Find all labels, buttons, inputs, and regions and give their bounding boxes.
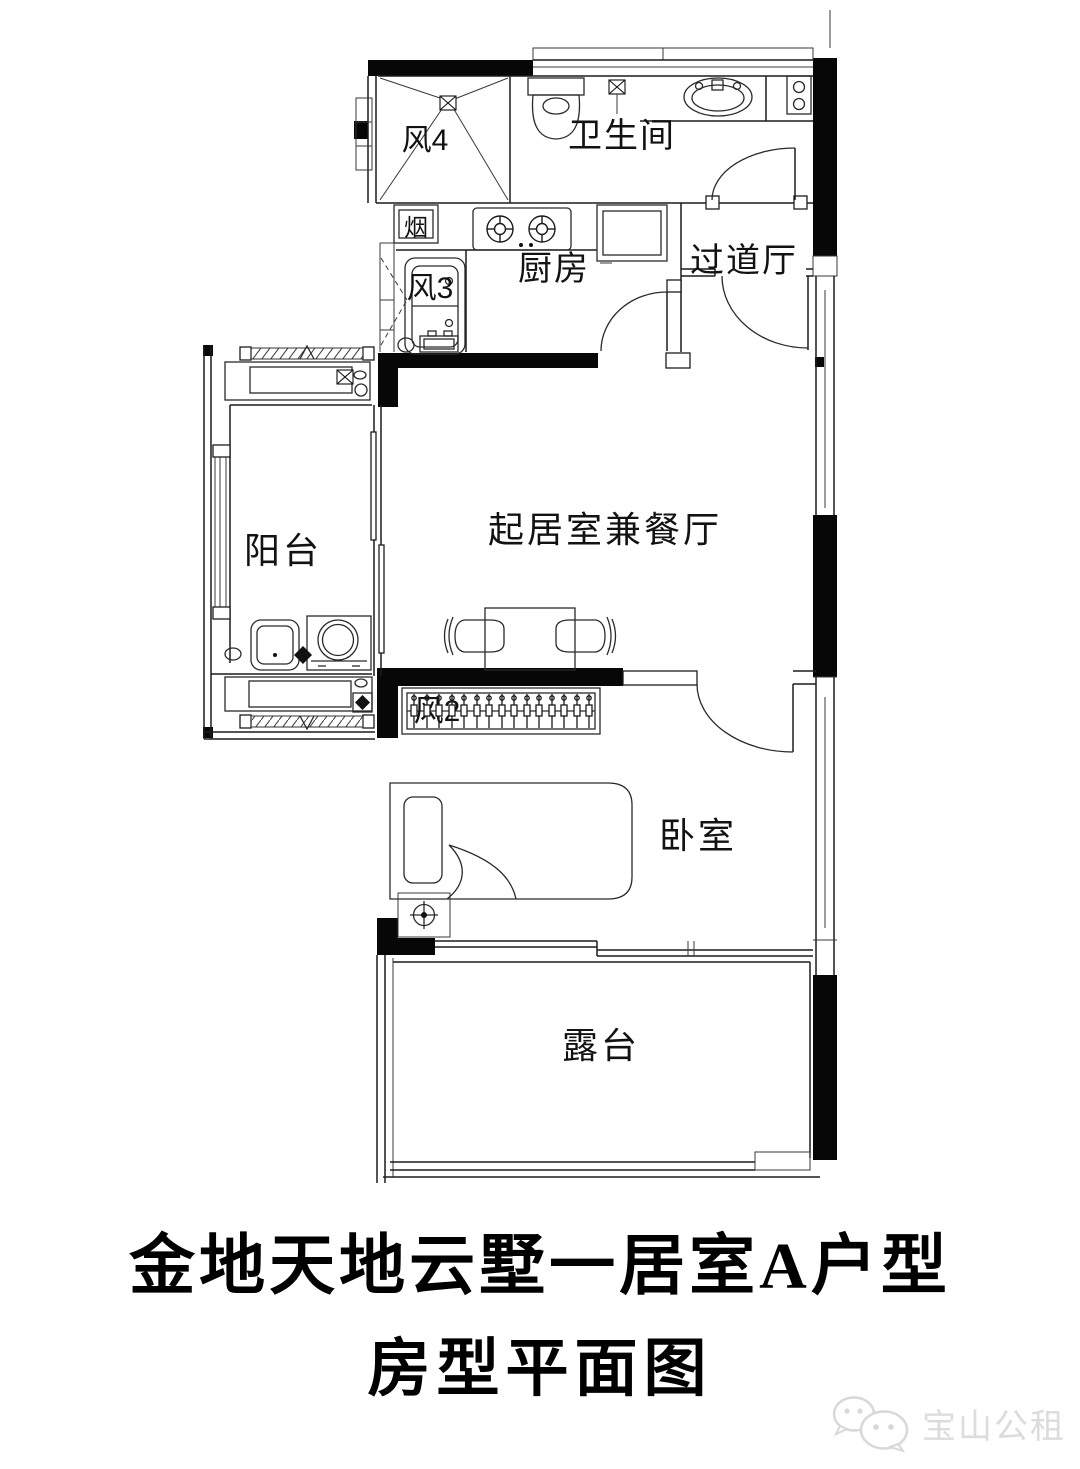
- room-label-kitchen: 厨房: [518, 250, 590, 288]
- dining-chair-right-icon: [556, 617, 616, 655]
- bathroom-floor-drain-icon: [609, 80, 625, 114]
- room-label-bathroom: 卫生间: [568, 117, 676, 155]
- balcony-left-window: [213, 445, 230, 619]
- flue-shaft-box: 烟: [394, 205, 438, 243]
- dining-chair-left-icon: [445, 617, 505, 655]
- bed-icon: [390, 783, 632, 899]
- dining-table-icon: [485, 608, 575, 670]
- kitchen: 烟 风3: [380, 203, 690, 368]
- bathroom-cabinet-icon: [787, 76, 811, 114]
- balcony-top-louver: [240, 346, 374, 360]
- room-label-balcony: 阳台: [244, 530, 322, 571]
- gas-meter-icon: [398, 331, 458, 352]
- balcony-sliding-door: [371, 405, 384, 676]
- fridge-icon: [597, 205, 667, 263]
- room-label-bedroom: 卧室: [659, 815, 737, 856]
- hallway-door: [722, 276, 808, 350]
- kitchen-door: [601, 280, 690, 368]
- room-label-hallway: 过道厅: [690, 242, 798, 280]
- floor-plan-page: 风4 卫生间: [0, 0, 1080, 1469]
- plan-title: 金地天地云墅一居室A户型: [0, 1212, 1080, 1308]
- floor-drain-icon: [440, 96, 456, 110]
- shaft-label-wind4: 风4: [402, 124, 449, 157]
- shaft-label-wind3: 风3: [407, 272, 454, 305]
- bathroom: 卫生间: [528, 76, 813, 200]
- living-dining-room: 起居室兼餐厅: [371, 405, 722, 676]
- balcony-bottom-louver: [240, 715, 374, 729]
- equipment-platform-bottom: [225, 677, 372, 712]
- laundry-sink-icon: [225, 620, 312, 670]
- hallway: 过道厅: [681, 242, 837, 350]
- washing-machine-icon: [307, 616, 371, 670]
- bathroom-door: [712, 148, 795, 200]
- wardrobe-icon: 风2: [402, 688, 600, 734]
- terrace: 露台: [377, 955, 820, 1183]
- floor-plan-drawing: 风4 卫生间: [0, 0, 1080, 1200]
- room-label-terrace: 露台: [562, 1025, 640, 1066]
- bedroom-south-window: [435, 941, 813, 956]
- top-window-sill: [533, 10, 830, 76]
- bedroom-door: [697, 684, 793, 752]
- walls: [203, 58, 837, 1160]
- shaft-label-flue: 烟: [404, 215, 428, 242]
- stove-icon: [473, 208, 571, 250]
- room-label-living: 起居室兼餐厅: [488, 509, 722, 550]
- balcony: 阳台: [204, 345, 375, 739]
- shower-shaft-area: 风4: [380, 78, 508, 200]
- watermark-label: 宝山公租: [922, 1399, 1066, 1448]
- bedroom: 风2: [390, 671, 816, 956]
- watermark: 宝山公租: [828, 1394, 1066, 1452]
- equipment-platform-top: [225, 362, 370, 400]
- wechat-icon: [828, 1394, 912, 1452]
